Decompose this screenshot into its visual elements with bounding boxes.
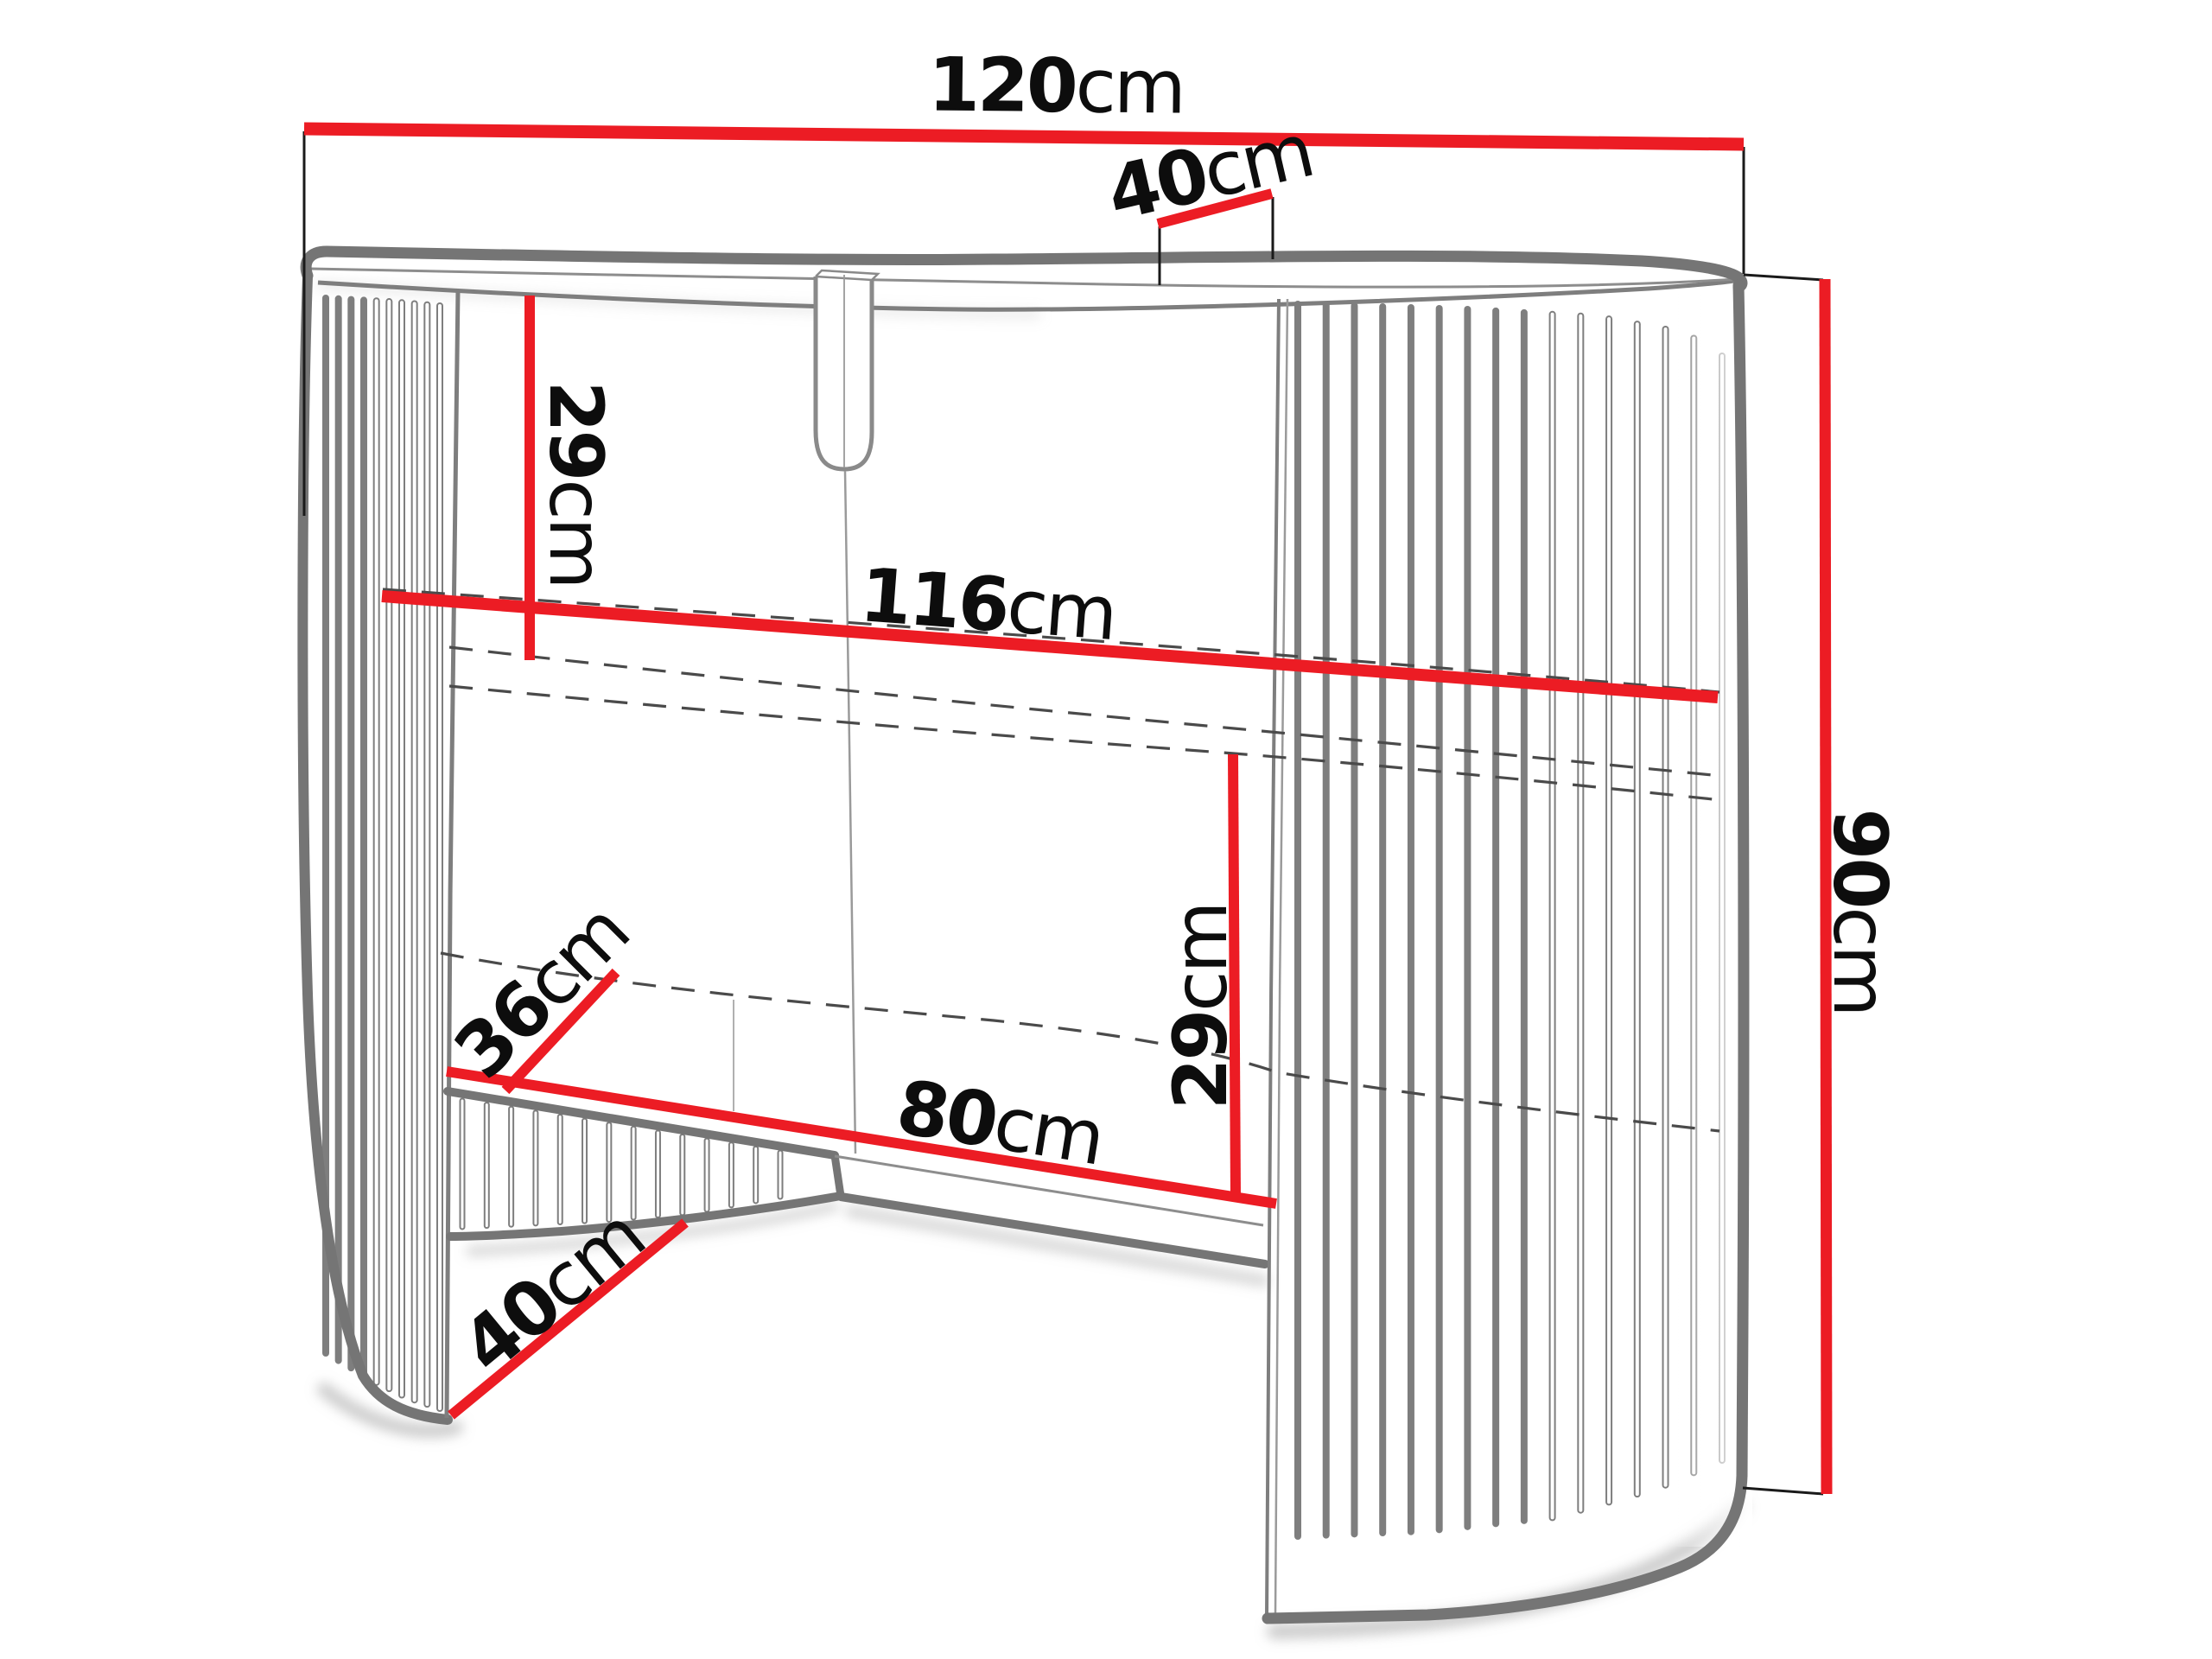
right-column-slats	[1298, 304, 1722, 1536]
foot-end-cap	[835, 1155, 841, 1196]
dimension-diagram: 120cm 40cm 29cm 116cm 36cm 29cm 80cm 40c…	[0, 0, 2212, 1659]
tabletop	[306, 251, 1742, 309]
dim-line-total-width	[304, 129, 1744, 144]
left-column-slats	[326, 298, 440, 1408]
hidden-edges	[383, 589, 1721, 1131]
dim-label-total-height: 90cm	[1822, 809, 1897, 1015]
ext-height-bottom	[1743, 1488, 1823, 1494]
handle-and-seam	[816, 270, 878, 1154]
tabletop-front-top-edge	[311, 269, 1737, 287]
dim-label-shelf-to-base: 29cm	[1164, 904, 1238, 1110]
dim-label-inner-width: 116cm	[857, 558, 1117, 652]
opening-top-front-edge	[841, 1197, 1265, 1264]
ext-height-top	[1744, 275, 1823, 280]
shelf-front-top-dashed	[449, 647, 1721, 776]
left-column-inner-edge	[447, 290, 458, 1418]
door-seam	[845, 471, 855, 1154]
shelf-front-bottom-dashed	[449, 686, 1721, 800]
dim-line-opening-width	[447, 1071, 1276, 1204]
dim-label-top-to-shelf: 29cm	[538, 381, 613, 588]
left-column	[302, 276, 458, 1420]
dim-label-total-width: 120cm	[928, 48, 1184, 124]
right-column	[1267, 285, 1752, 1618]
